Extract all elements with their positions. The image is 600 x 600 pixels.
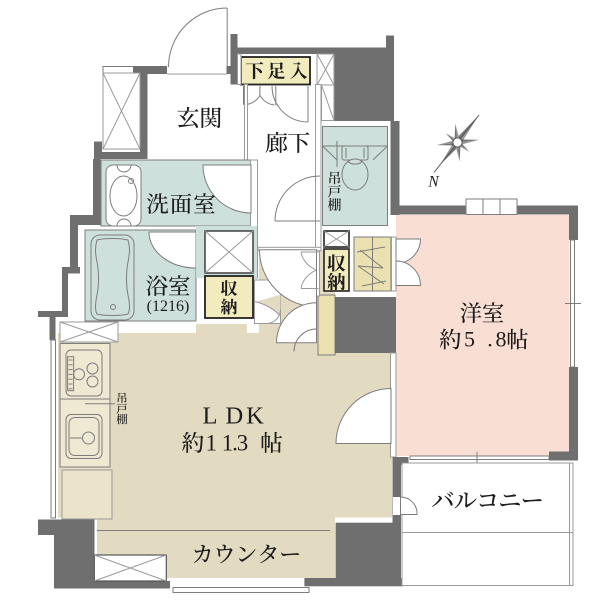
svg-text:D: D bbox=[226, 402, 244, 429]
svg-text:3: 3 bbox=[237, 430, 249, 455]
svg-text:L: L bbox=[203, 402, 218, 429]
svg-text:.: . bbox=[487, 327, 493, 352]
svg-text:K: K bbox=[246, 402, 264, 429]
svg-text:N: N bbox=[427, 173, 440, 190]
svg-text:1: 1 bbox=[205, 430, 217, 455]
svg-text:(1216): (1216) bbox=[147, 298, 190, 315]
svg-text:8: 8 bbox=[496, 327, 507, 352]
svg-text:5: 5 bbox=[464, 327, 475, 352]
